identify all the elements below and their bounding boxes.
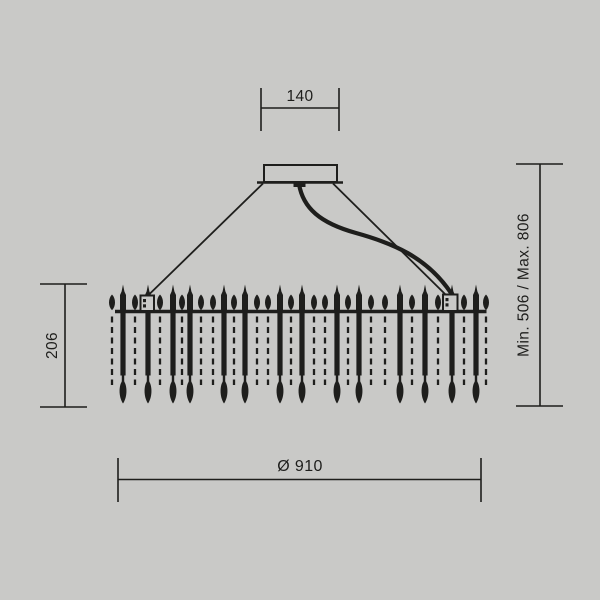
bead xyxy=(409,295,415,311)
crystal-drop-tip xyxy=(299,380,306,404)
crystal-rod-stem xyxy=(356,311,361,376)
dim-left-label: 206 xyxy=(44,332,61,359)
crystal-rod-stem xyxy=(299,311,304,376)
bead xyxy=(288,295,294,311)
bead xyxy=(254,295,260,311)
crystal-drop-tip xyxy=(356,380,363,404)
crystal-rod-stem xyxy=(334,311,339,376)
chandelier-dimension-diagram: 140 206 Min. 506 / Max. 806 Ø 910 xyxy=(0,0,600,600)
crystal-drop-tip xyxy=(170,380,177,404)
suspension-cable-right xyxy=(333,184,446,295)
dim-right-label: Min. 506 / Max. 806 xyxy=(516,213,533,357)
bead xyxy=(132,295,138,311)
fixture-drawing xyxy=(109,165,489,404)
bead xyxy=(231,295,237,311)
bead xyxy=(198,295,204,311)
ceiling-canopy xyxy=(264,165,337,182)
dim-top: 140 xyxy=(261,88,339,131)
crystal-rod-stem xyxy=(473,311,478,376)
crystal-drop-tip xyxy=(334,380,341,404)
dim-left: 206 xyxy=(40,284,87,407)
crystal-rod-stem xyxy=(397,311,402,376)
crystal-rod-stem xyxy=(449,311,454,376)
bead xyxy=(179,295,185,311)
crystal-drop-tip xyxy=(187,380,194,404)
bead xyxy=(435,295,441,311)
dim-bottom: Ø 910 xyxy=(118,458,481,502)
crystal-drop-tip xyxy=(120,380,127,404)
suspension-cable-left xyxy=(148,184,264,297)
crystal-drop-tip xyxy=(473,380,480,404)
crystal-rod-stem xyxy=(187,311,192,376)
crystal-rod-stem xyxy=(145,311,150,376)
crystal-drop-tip xyxy=(221,380,228,404)
connector-detail xyxy=(446,303,449,306)
crystal-rod-stem xyxy=(221,311,226,376)
crystal-rod-stem xyxy=(277,311,282,376)
bead xyxy=(345,295,351,311)
dim-right: Min. 506 / Max. 806 xyxy=(516,164,564,406)
crystal-drop-tip xyxy=(397,380,404,404)
crystal-rod-stem xyxy=(170,311,175,376)
bead xyxy=(322,295,328,311)
bead xyxy=(382,295,388,311)
connector-detail xyxy=(446,298,449,301)
dim-top-label: 140 xyxy=(286,88,313,105)
dim-bottom-label: Ø 910 xyxy=(277,458,323,475)
bead xyxy=(483,295,489,311)
cable-connector xyxy=(443,295,458,312)
bead xyxy=(311,295,317,311)
drawing-canvas: 140 206 Min. 506 / Max. 806 Ø 910 xyxy=(0,0,600,600)
bead xyxy=(265,295,271,311)
crystal-rod-stem xyxy=(242,311,247,376)
crystal-rod-stem xyxy=(120,311,125,376)
bead xyxy=(157,295,163,311)
crystal-drop-tip xyxy=(449,380,456,404)
cord-outlet xyxy=(294,181,306,187)
bead xyxy=(368,295,374,311)
crystal-drop-tip xyxy=(145,380,152,404)
crystal-drop-tip xyxy=(422,380,429,404)
crystal-drop-tip xyxy=(277,380,284,404)
cable-connector xyxy=(141,296,155,312)
connector-detail xyxy=(143,304,146,307)
crystal-rod-stem xyxy=(422,311,427,376)
bead xyxy=(210,295,216,311)
bead xyxy=(109,295,115,311)
bead xyxy=(461,295,467,311)
crystal-drop-tip xyxy=(242,380,249,404)
connector-detail xyxy=(143,299,146,302)
